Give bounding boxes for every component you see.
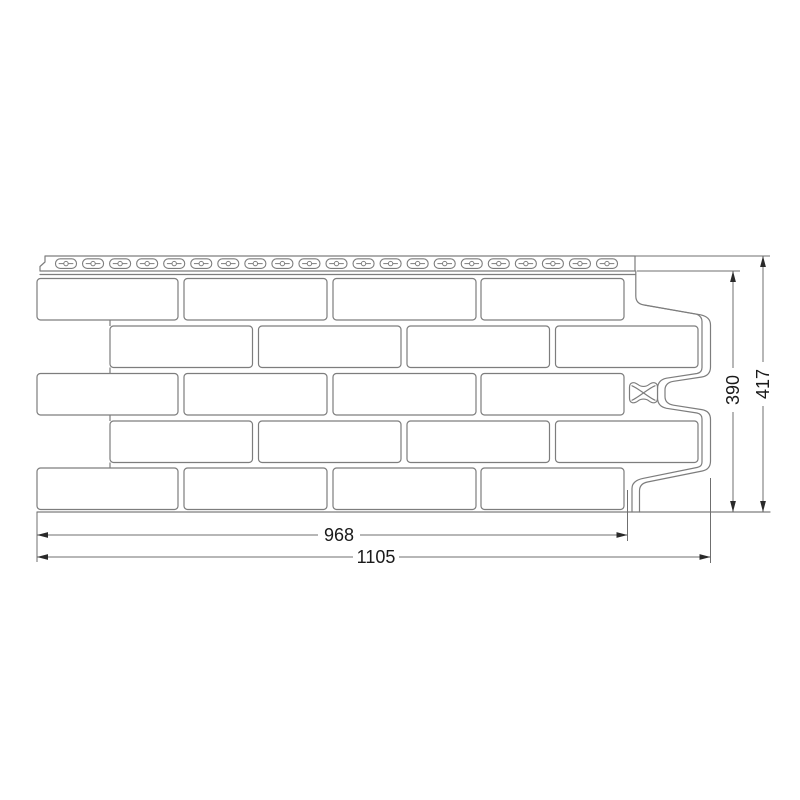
nail-slot — [218, 259, 239, 269]
dim-label-1105: 1105 — [357, 547, 396, 567]
nail-slot — [164, 259, 185, 269]
brick — [259, 421, 402, 463]
brick — [556, 421, 699, 463]
nail-slots — [56, 259, 618, 269]
dim-label-417: 417 — [753, 369, 773, 399]
nail-slot — [380, 259, 401, 269]
nail-slot-hole — [388, 261, 392, 265]
nail-slot-hole — [334, 261, 338, 265]
nail-slot-hole — [551, 261, 555, 265]
brick — [110, 421, 253, 463]
nail-slot-hole — [145, 261, 149, 265]
nail-slot-hole — [307, 261, 311, 265]
nail-slot-hole — [118, 261, 122, 265]
brick — [333, 468, 476, 510]
nail-slot-hole — [605, 261, 609, 265]
nail-slot-hole — [443, 261, 447, 265]
nail-slot — [299, 259, 320, 269]
dim-label-968: 968 — [324, 525, 354, 545]
brick — [481, 374, 624, 416]
brick — [37, 374, 178, 416]
brick — [184, 468, 327, 510]
brick — [259, 326, 402, 368]
brick — [407, 421, 550, 463]
nail-slot — [245, 259, 266, 269]
nail-slot — [515, 259, 536, 269]
nail-slot — [191, 259, 212, 269]
drawing-canvas: 968 1105 390 417 — [0, 0, 800, 800]
nail-slot-hole — [253, 261, 257, 265]
brick — [481, 279, 624, 321]
brick — [333, 279, 476, 321]
nail-slot-hole — [226, 261, 230, 265]
dim-label-390: 390 — [723, 375, 743, 405]
nail-slot — [353, 259, 374, 269]
brick — [184, 374, 327, 416]
nail-slot-hole — [172, 261, 176, 265]
nail-slot — [56, 259, 77, 269]
nail-slot — [488, 259, 509, 269]
brick — [37, 279, 178, 321]
brick — [110, 326, 253, 368]
nail-slot-hole — [64, 261, 68, 265]
nail-slot-hole — [91, 261, 95, 265]
nail-slot-hole — [524, 261, 528, 265]
brick — [556, 326, 699, 368]
brick — [407, 326, 550, 368]
brick — [184, 279, 327, 321]
nail-slot — [569, 259, 590, 269]
nail-slot — [542, 259, 563, 269]
nail-slot — [597, 259, 618, 269]
brick — [333, 374, 476, 416]
nail-slot — [83, 259, 104, 269]
facade-panel-drawing: 968 1105 390 417 — [0, 0, 800, 800]
nail-slot-hole — [497, 261, 501, 265]
nail-slot-hole — [361, 261, 365, 265]
nail-slot-hole — [470, 261, 474, 265]
nail-slot — [137, 259, 158, 269]
nail-slot-hole — [280, 261, 284, 265]
nail-slot — [434, 259, 455, 269]
nail-slot-hole — [199, 261, 203, 265]
nail-slot — [407, 259, 428, 269]
nail-slot-hole — [415, 261, 419, 265]
nail-slot-hole — [578, 261, 582, 265]
brick — [37, 468, 178, 510]
nail-slot — [326, 259, 347, 269]
brick-field — [37, 279, 698, 510]
nail-slot — [272, 259, 293, 269]
brick — [481, 468, 624, 510]
nail-slot — [461, 259, 482, 269]
nail-slot — [110, 259, 131, 269]
